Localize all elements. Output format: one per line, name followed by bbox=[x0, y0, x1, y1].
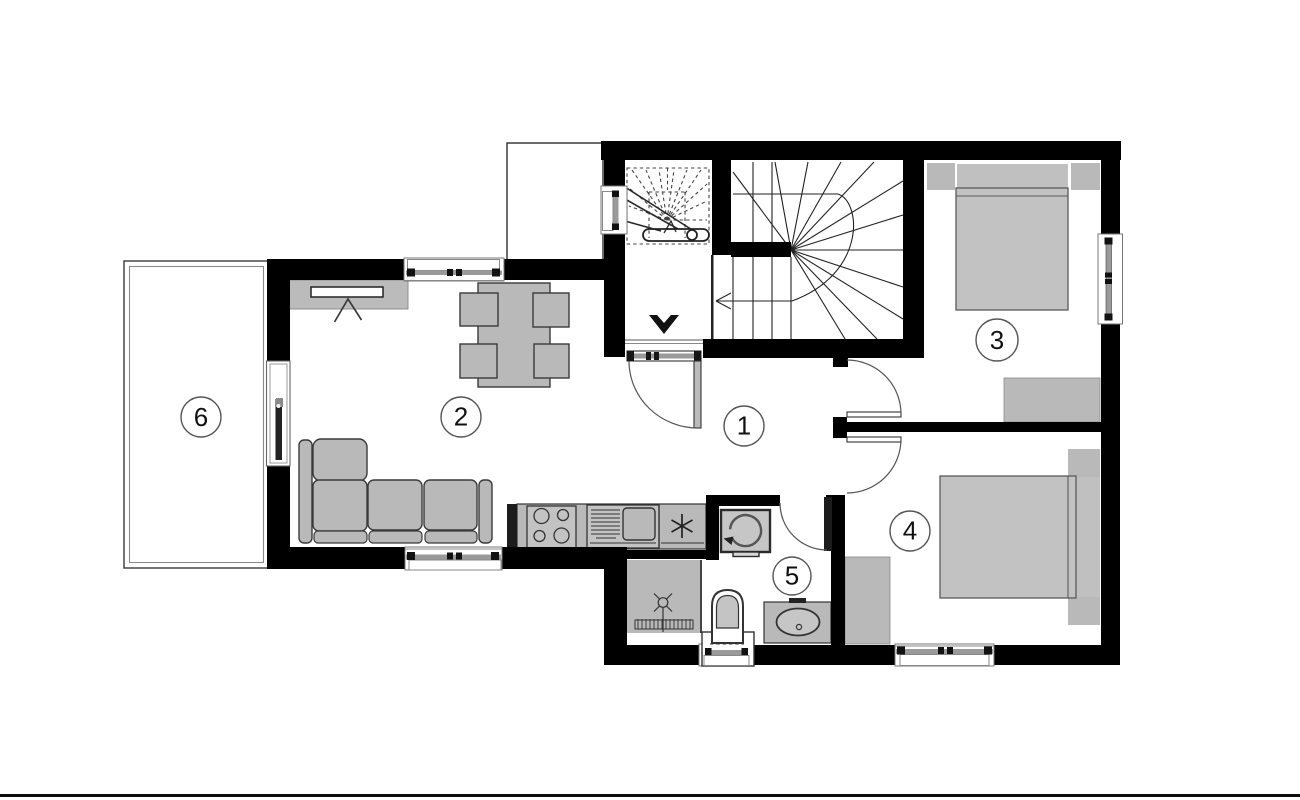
svg-text:5: 5 bbox=[785, 561, 799, 591]
svg-text:1: 1 bbox=[737, 411, 751, 441]
svg-text:2: 2 bbox=[454, 402, 468, 432]
svg-text:6: 6 bbox=[194, 402, 208, 432]
svg-text:4: 4 bbox=[903, 516, 917, 546]
svg-text:3: 3 bbox=[990, 325, 1004, 355]
